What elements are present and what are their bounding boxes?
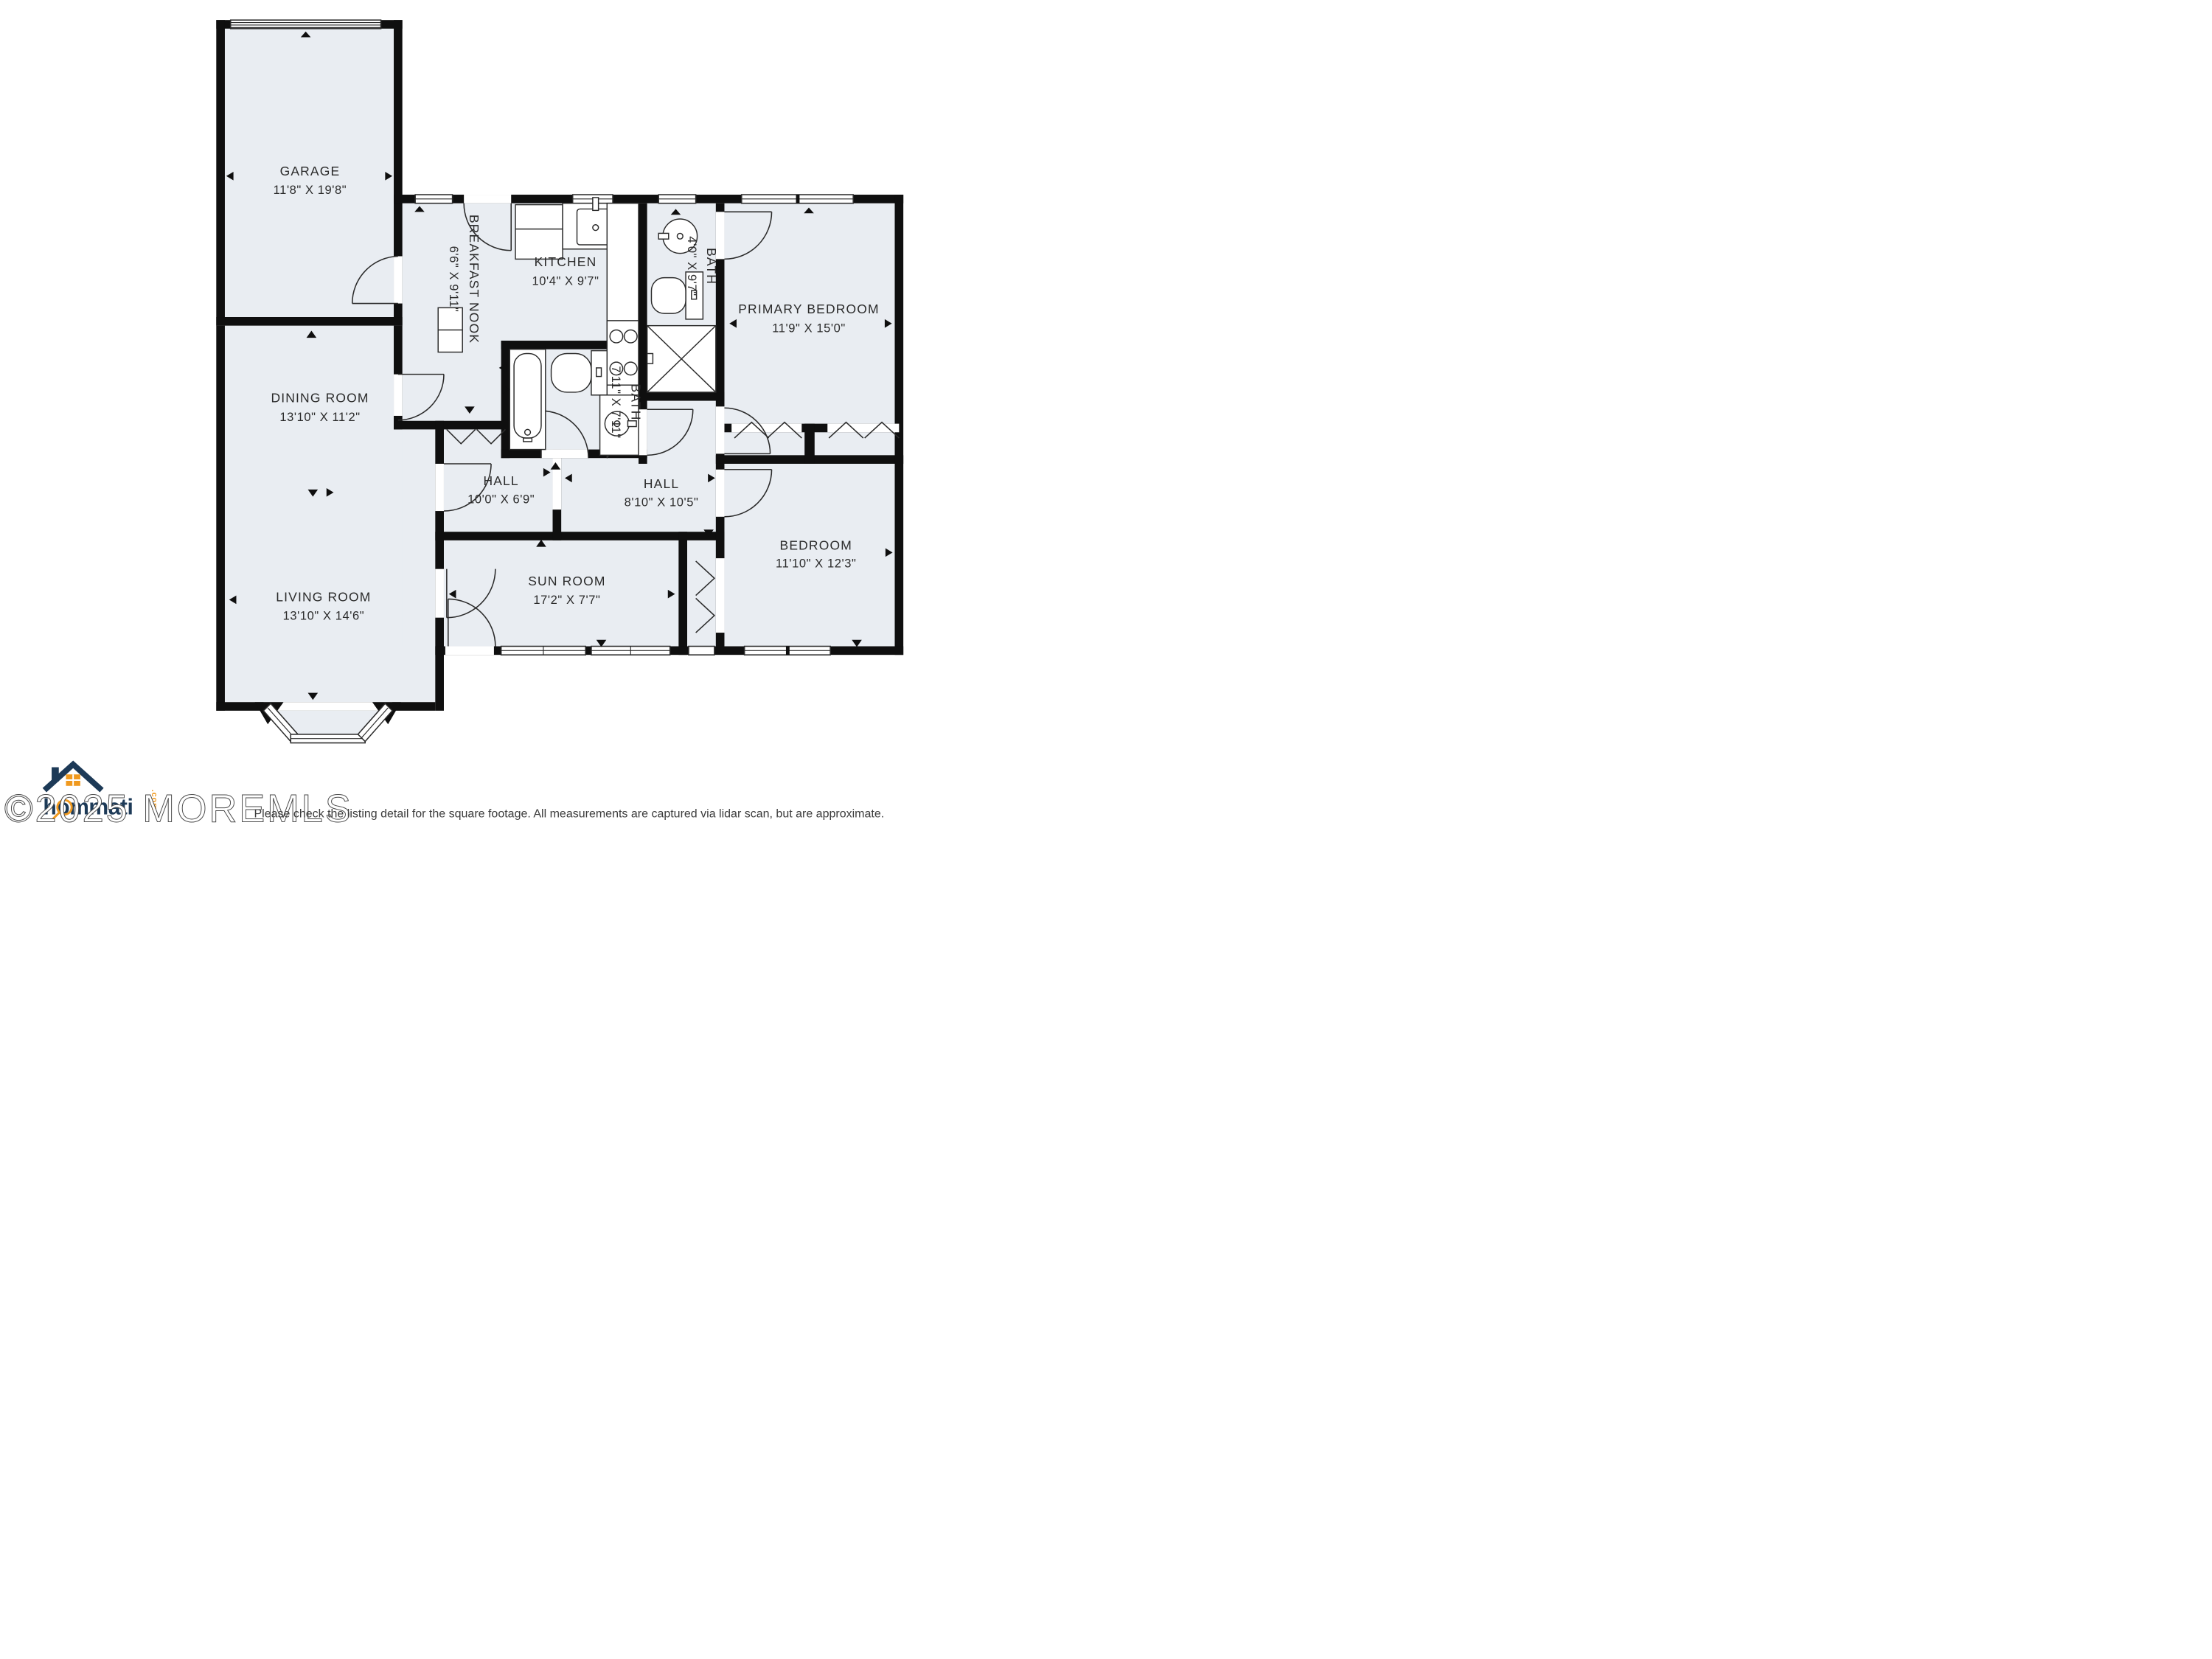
room-label-garage: GARAGE [280, 164, 341, 178]
floor-plan-page: GARAGE 11'8" X 19'8" DINING ROOM 13'10" … [0, 0, 1106, 829]
opening-bath-door [541, 450, 588, 459]
opening-bedroom-entry [716, 470, 725, 517]
wall-bath-left [501, 341, 510, 458]
refrigerator [515, 205, 563, 260]
window-sunroom-2 [591, 647, 670, 655]
wall-exterior-left [216, 326, 225, 711]
room-dims-kitchen: 10'4" X 9'7" [532, 274, 599, 288]
window-sunroom-1 [501, 647, 586, 655]
nook-bench [438, 307, 462, 352]
room-label-bedroom: BEDROOM [780, 538, 852, 552]
floor-plan-canvas: GARAGE 11'8" X 19'8" DINING ROOM 13'10" … [0, 0, 1106, 829]
opening-bedroom-closet [716, 558, 725, 633]
window-nook [415, 195, 452, 204]
room-dims-bedroom: 11'10" X 12'3" [776, 557, 856, 571]
room-label-sun-room: SUN ROOM [528, 574, 605, 588]
back-door [689, 647, 714, 655]
room-dims-primary-bedroom: 11'9" X 15'0" [772, 321, 846, 335]
room-label-kitchen: KITCHEN [535, 254, 597, 269]
wall-shower-bottom [639, 392, 724, 401]
room-label-bath: BATH [628, 384, 643, 421]
wall-garage-left [216, 20, 225, 325]
window-bedroom [745, 647, 830, 655]
wall-closet-divider [804, 424, 815, 464]
room-dims-sun-room: 17'2" X 7'7" [533, 594, 600, 607]
disclaimer-text: Please check the listing detail for the … [254, 807, 884, 820]
room-label-living-room: LIVING ROOM [276, 589, 371, 604]
room-dims-hall-2: 8'10" X 10'5" [625, 495, 699, 509]
room-dims-dining-room: 13'10" X 11'2" [279, 411, 360, 424]
room-dims-bath-ensuite: 4'0" X 9'7" [685, 236, 698, 296]
bathtub [509, 349, 546, 450]
room-dims-hall-1: 10'0" X 6'9" [467, 493, 535, 506]
garage-door [231, 20, 381, 29]
opening-front-door [464, 195, 511, 204]
room-label-hall-2: HALL [644, 476, 679, 491]
toilet-bath [552, 351, 608, 395]
room-dims-garage: 11'8" X 19'8" [274, 184, 347, 197]
opening-primary-entry [716, 406, 725, 453]
room-label-hall-1: HALL [483, 473, 518, 488]
room-label-primary-bedroom: PRIMARY BEDROOM [738, 302, 880, 316]
room-label-breakfast-nook: BREAKFAST NOOK [467, 215, 481, 344]
opening-living-sunroom [435, 569, 444, 618]
window-primary-double [742, 195, 853, 204]
room-dims-breakfast-nook: 6'6" X 9'11" [447, 246, 460, 313]
opening-sunroom-door [445, 647, 494, 655]
shower [647, 326, 716, 392]
wall-sunroom-right [678, 532, 687, 655]
room-dims-bath: 7'11" X 7'11" [609, 366, 622, 438]
opening-garage-door [394, 256, 403, 303]
logo-chimney-icon [52, 768, 59, 782]
room-label-bath-ensuite: BATH [704, 248, 719, 285]
window-bath [658, 195, 695, 204]
opening-dining-nook [394, 375, 403, 416]
wall-garage-dining [216, 317, 402, 326]
wall-nook-bottom [394, 421, 514, 430]
room-dims-living-room: 13'10" X 14'6" [283, 610, 365, 623]
opening-living-hall [435, 464, 444, 511]
room-label-dining-room: DINING ROOM [271, 391, 369, 406]
